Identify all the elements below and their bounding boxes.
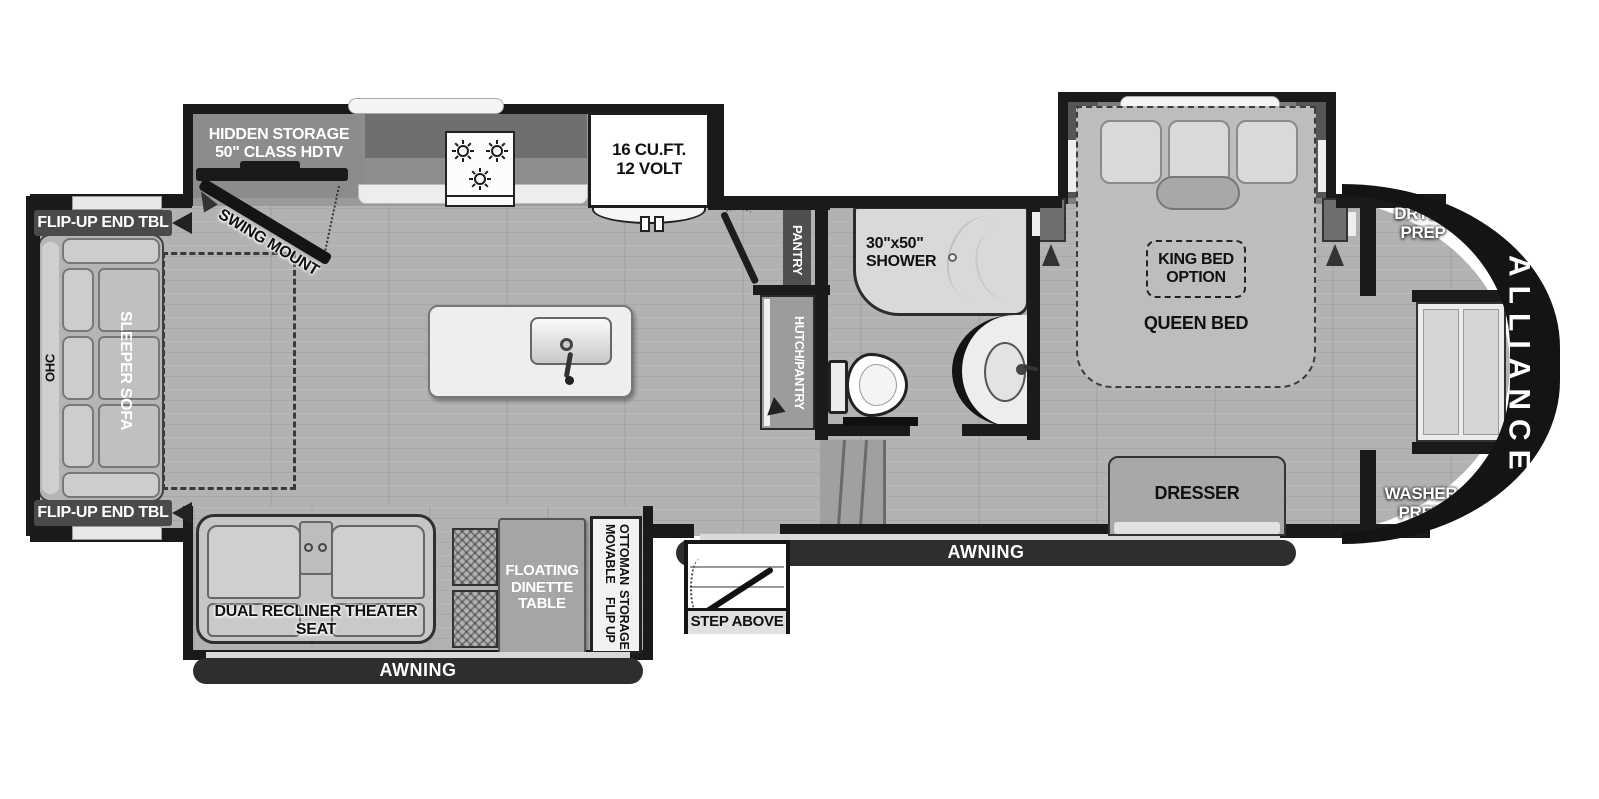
sofa-back-cushion <box>62 336 94 400</box>
sofa-armrest <box>62 472 160 498</box>
flip-up-end-table-top-label: FLIP-UP END TBL <box>34 210 172 236</box>
sofa-bed-extension-outline <box>162 252 296 490</box>
slide-trim <box>1068 140 1076 192</box>
rear-wall <box>26 196 40 536</box>
toilet-seat <box>859 364 897 406</box>
sofa-back-cushion <box>62 268 94 332</box>
end-table-bottom <box>72 526 162 540</box>
brand-logo: ALLIANCE <box>1496 252 1542 482</box>
shower-label: 30"x50" SHOWER <box>866 235 936 270</box>
hutch-front-edge <box>764 299 770 426</box>
hutch-pantry: HUTCH/PANTRY <box>760 295 815 430</box>
floating-dinette-table: FLOATING DINETTE TABLE <box>498 518 586 658</box>
theater-seatback <box>331 525 425 599</box>
king-bed-option: KING BED OPTION <box>1146 240 1246 298</box>
ramp-line <box>837 440 846 526</box>
pantry: PANTRY <box>783 210 811 290</box>
sofa-armrest <box>62 238 160 264</box>
rv-floorplan: FLIP-UP END TBL FLIP-UP END TBL OHC SLEE… <box>0 0 1599 799</box>
bath-left-wall <box>815 196 828 440</box>
burner-icon <box>468 167 492 191</box>
ramp-line <box>883 440 886 526</box>
sink-faucet-icon <box>560 338 573 351</box>
ottoman <box>452 528 498 586</box>
hidden-storage-label: HIDDEN STORAGE 50" CLASS HDTV <box>193 122 365 166</box>
nightstand-trim <box>1032 212 1040 236</box>
slide-trim <box>1318 140 1326 192</box>
theater-console <box>299 521 333 575</box>
top-wall-mid <box>708 196 830 210</box>
bolster-pillow <box>1156 176 1240 210</box>
stove <box>445 131 515 207</box>
queen-bed: KING BED OPTION QUEEN BED <box>1076 106 1316 388</box>
awning-bar-bottom: AWNING <box>193 658 643 684</box>
step-above-label: STEP ABOVE <box>688 608 786 634</box>
ottoman <box>452 590 498 648</box>
cupholder-icon <box>304 543 313 552</box>
sink-faucet-knob <box>565 376 574 385</box>
burner-icon <box>485 139 509 163</box>
burner-icon <box>451 139 475 163</box>
sleeper-sofa-label: SLEEPER SOFA <box>112 276 138 466</box>
toilet-tank <box>828 360 848 414</box>
sofa-back-cushion <box>62 404 94 468</box>
refrigerator-handle <box>640 216 650 232</box>
pillow <box>1100 120 1162 184</box>
tv-stowed-mount <box>240 161 300 170</box>
queen-bed-label: QUEEN BED <box>1116 314 1276 334</box>
refrigerator: 16 CU.FT. 12 VOLT <box>588 112 710 208</box>
ohc-strip: OHC <box>42 242 59 494</box>
movable-ottoman-storage: MOVABLE OTTOMAN FLIP UP STORAGE <box>590 516 642 654</box>
bath-pocket-door <box>843 417 918 426</box>
entry-steps: STEP ABOVE <box>684 540 790 634</box>
slide-window <box>348 98 504 114</box>
shower-drain <box>948 253 957 262</box>
bedroom-step-ramp <box>820 440 886 526</box>
stove-front <box>447 195 513 198</box>
fridge-side-wall <box>708 104 724 208</box>
sleeper-sofa: OHC SLEEPER SOFA <box>38 234 164 502</box>
theater-seatback <box>207 525 301 599</box>
shower: 30"x50" SHOWER <box>853 206 1029 316</box>
bath-bottom-wall-right <box>962 424 1040 436</box>
dresser-front-edge <box>1114 522 1280 534</box>
hutch-pantry-label: HUTCH/PANTRY <box>786 299 810 426</box>
pillow <box>1168 120 1230 184</box>
cupholder-icon <box>318 543 327 552</box>
end-table-top <box>72 196 162 210</box>
ramp-line <box>859 440 868 526</box>
pillow <box>1236 120 1298 184</box>
flip-up-end-table-bottom-label: FLIP-UP END TBL <box>34 500 172 526</box>
theater-seat-label: DUAL RECLINER THEATER SEAT <box>196 610 436 632</box>
bottom-wall-mid <box>644 524 694 538</box>
refrigerator-handle <box>654 216 664 232</box>
